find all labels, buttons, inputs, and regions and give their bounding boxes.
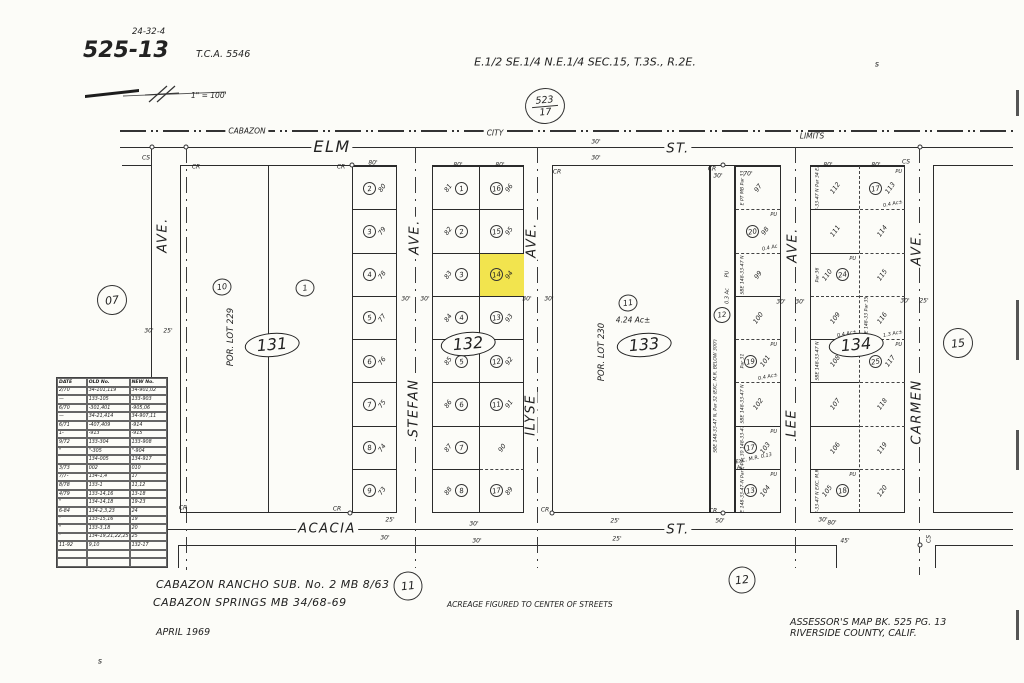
lot-cell: SBE 148-33-47 N Par 34 EXC. M.R. 112 (811, 166, 859, 209)
lot-cell: 90 (480, 426, 524, 469)
lot-cell: 81 1 (433, 166, 479, 209)
parcel-number-circle: 6 (362, 354, 377, 369)
scale-label: 1" = 100' (191, 92, 227, 100)
revision-date: 1- (57, 430, 87, 439)
parcel-number-circle: 4 (362, 267, 377, 282)
registration-mark: s (875, 60, 879, 69)
dimension-label: 30' (591, 139, 600, 146)
street-suffix-lee: AVE. (787, 225, 800, 265)
revision-old-no: 133-15,16 (87, 516, 130, 525)
original-lot-number: 76 (377, 355, 388, 366)
revision-old-no: -301,401 (87, 404, 130, 413)
pu-label: PU (770, 212, 777, 218)
parcel-note: SBE 148-33-47 N (816, 342, 821, 381)
parcel-number-circle: 25 (868, 354, 883, 369)
revision-date (57, 558, 87, 567)
lot-cell: 82 2 (433, 209, 479, 252)
revision-date: 9/72 (57, 438, 87, 447)
lot-cell: SBE Par 30 148-33-47 N PU 17 103 EXC. M.… (736, 426, 780, 469)
revision-old-no: 34-101,119 (87, 387, 130, 396)
parcel-number-circle: 20 (745, 224, 760, 239)
revision-date: — (57, 395, 87, 404)
revision-date: " (57, 516, 87, 525)
dimension-label: 30' (420, 296, 429, 303)
parcel-number-circle: 19 (743, 354, 758, 369)
south-block-stub-1 (178, 545, 179, 568)
revision-table-row: " 133-3,18 20 (57, 524, 167, 533)
revision-table-row: 7/7- 134-1,4 17 (57, 473, 167, 482)
revision-date: 7/7- (57, 473, 87, 482)
revision-table-row: 134-005 134-917 (57, 455, 167, 464)
original-lot-number: 117 (883, 354, 897, 369)
scan-edge-mark (1016, 300, 1019, 360)
revision-new-no: 133-903 (130, 395, 167, 404)
city-limits-label-city: CITY (484, 129, 507, 137)
strip-sbe-note: SBE 148-33-47 N, Par 32 (EXC. M.R. BELOW… (715, 339, 720, 453)
revision-date (57, 550, 87, 559)
original-lot-number: 98 (760, 226, 771, 237)
dimension-label: 30' (472, 538, 481, 545)
lot-cell: 15 95 (480, 209, 524, 252)
legal-description-title: E.1/2 SE.1/4 N.E.1/4 SEC.15, T.3S., R.2E… (474, 57, 696, 68)
parcel-number-circle: 8 (362, 440, 377, 455)
revision-date: — (57, 412, 87, 421)
street-suffix-acacia: ST. (664, 524, 691, 537)
revision-table-row: " 134-14,18 19-23 (57, 498, 167, 507)
revision-new-no: -915 (130, 430, 167, 439)
corner-marker-label: CR (553, 169, 561, 176)
dimension-label: 30' (522, 296, 531, 303)
original-lot-number: 86 (443, 399, 454, 410)
original-lot-number: 115 (876, 267, 890, 282)
city-limits-label-limits: LIMITS (797, 132, 827, 140)
lot-cell: 7 75 (353, 382, 397, 425)
scan-edge-mark (1016, 430, 1019, 470)
corner-marker-label: CR (541, 507, 549, 514)
lot-cell: 107 (811, 382, 859, 425)
original-lot-number: 77 (377, 312, 388, 323)
corner-marker-label: CR (337, 164, 345, 171)
dimension-label: 30' (900, 298, 909, 305)
revision-table-row: " "-305 "-904 (57, 447, 167, 456)
col-header-new-no: NEW No. (130, 378, 167, 387)
carmen-centerline (919, 147, 920, 575)
lot-cell: 83 3 (433, 253, 479, 296)
corner-marker-label: CR (709, 508, 717, 515)
original-lot-number: 105 (821, 483, 835, 498)
parcel-number-circle: 9 (362, 483, 377, 498)
dimension-label: 25' (385, 517, 394, 524)
revision-new-no: 134-917 (130, 455, 167, 464)
lot-cell: 6 76 (353, 339, 397, 382)
original-lot-number: 100 (751, 310, 765, 325)
parcel-note: SBE 148-33-47 N EXC. M.R. Par 28 (816, 469, 821, 512)
street-suffix-elm: ST. (664, 143, 691, 156)
revision-table-row: 6-84 134-2,3,23 24 (57, 507, 167, 516)
revision-table-row: " 134-19,21,22,25 25 (57, 533, 167, 542)
revision-table-row: 9/72 133-304 133-908 (57, 438, 167, 447)
adjacent-page-number: 11 (400, 579, 415, 593)
dimension-label: 80' (368, 160, 377, 167)
lot-cell: SBE 148-33-47 N 99 (736, 253, 780, 296)
revision-old-no: "-305 (87, 447, 130, 456)
acacia-street-line (150, 529, 1013, 530)
registration-mark: s (98, 657, 102, 666)
original-lot-number: 114 (876, 224, 890, 239)
revision-date (57, 455, 87, 464)
corner-marker-label: CS (902, 159, 910, 166)
revision-old-no: 34-21,414 (87, 412, 130, 421)
lot-cell: PU 17 113 0.4 Ac± (860, 166, 905, 209)
dimension-label: 30' (818, 517, 827, 524)
revision-new-no (130, 550, 167, 559)
left-block-top-stub (122, 165, 151, 166)
original-lot-number: 82 (443, 226, 454, 237)
dimension-label: 30' (713, 173, 722, 180)
parcel-number-circle: 13 (743, 483, 758, 498)
revision-new-no: 133-908 (130, 438, 167, 447)
parcel-number-circle: 8 (454, 483, 469, 498)
lot-cell: 8 74 (353, 426, 397, 469)
lot-cell: SBE 148-33-47-N Par 29 PU 13 104 (736, 469, 780, 512)
original-lot-number: 75 (377, 399, 388, 410)
revision-old-no: -913 (87, 430, 130, 439)
acreage-label: 0.4 Ac (762, 243, 779, 252)
revision-table-row: 6/70 -301,401 -905,06 (57, 404, 167, 413)
stefan-centerline (415, 147, 416, 568)
revision-table-row: — 133-105 133-903 (57, 395, 167, 404)
revision-old-no (87, 558, 130, 567)
dimension-label: 30' (469, 521, 478, 528)
parcel-number-circle: 6 (454, 397, 469, 412)
revision-table-body: 2/70 34-101,119 34-901,02 — 133-105 133-… (57, 387, 167, 567)
parcel-number-circle: 13 (489, 310, 504, 325)
parcel-number-circle: 1 (454, 181, 469, 196)
dimension-label: 70' (743, 171, 752, 178)
survey-node (918, 145, 923, 150)
revision-old-no: 133-304 (87, 438, 130, 447)
corner-marker-label: CR (179, 505, 187, 512)
city-limits-label-cabazon: CABAZON (225, 127, 268, 135)
parcel-number-circle: 4 (454, 310, 469, 325)
revision-date: " (57, 498, 87, 507)
revision-new-no: 17 (130, 473, 167, 482)
original-lot-number: 110 (821, 267, 835, 282)
dimension-label: 30' (795, 299, 804, 306)
revision-new-no: 13-18 (130, 490, 167, 499)
revision-table-row: 1- -913 -915 (57, 430, 167, 439)
lot-cell: 9 73 (353, 469, 397, 512)
revision-new-no: 20 (130, 524, 167, 533)
parcel-number-circle: 7 (454, 440, 469, 455)
revision-old-no: 133-105 (87, 395, 130, 404)
lot-cell: 14 94 (480, 253, 524, 296)
revision-old-no: -407,409 (87, 421, 130, 430)
revision-new-no: 25 (130, 533, 167, 542)
original-lot-number: 92 (504, 355, 515, 366)
lot-cell: 13 93 (480, 296, 524, 339)
original-lot-number: 96 (504, 182, 515, 193)
tax-code-area: T.C.A. 5546 (196, 50, 250, 60)
parcel-number-circle: 2 (454, 224, 469, 239)
dimension-label: 80' (871, 162, 880, 169)
lot-cell: 114 (860, 209, 905, 252)
dimension-label: 50' (715, 518, 724, 525)
elm-street-line (120, 147, 1013, 148)
lot-cell: 2 80 (353, 166, 397, 209)
lee-centerline (795, 147, 796, 568)
original-lot-number: 73 (377, 485, 388, 496)
revision-date: 6/71 (57, 421, 87, 430)
lot-cell: 17 89 (480, 469, 524, 512)
revision-table-row (57, 550, 167, 559)
corner-marker-label: CS (142, 155, 150, 162)
corner-marker-label: CR (708, 166, 716, 173)
map-date: APRIL 1969 (156, 628, 210, 638)
assessor-map-ref-1: ASSESSOR'S MAP BK. 525 PG. 13 (790, 618, 946, 628)
dimension-label: 30' (380, 535, 389, 542)
dimension-label: 80' (495, 162, 504, 169)
acreage-note: ACREAGE FIGURED TO CENTER OF STREETS (447, 601, 613, 609)
revision-old-no: 9,10 (87, 541, 130, 550)
revision-date: 6-84 (57, 507, 87, 516)
parcel-number-circle: 5 (362, 310, 377, 325)
revision-date: 8/78 (57, 481, 87, 490)
street-suffix-ilyse: AVE. (526, 220, 539, 260)
survey-node (550, 511, 555, 516)
lot-cell: PU 20 98 0.4 Ac (736, 209, 780, 252)
parcel-number-circle: 12 (489, 354, 504, 369)
original-lot-number: 80 (377, 182, 388, 193)
original-lot-number: 83 (443, 269, 454, 280)
revision-date: 6/70 (57, 404, 87, 413)
original-lot-number: 81 (443, 182, 454, 193)
corner-marker-label: CR (333, 506, 341, 513)
revision-table: DATE OLD No. NEW No. 2/70 34-101,119 34-… (56, 377, 168, 568)
parcel-number-circle: 17 (868, 181, 883, 196)
block-133-lee-column: E PT MB Par 33 97 PU 20 98 0.4 Ac (735, 165, 781, 513)
lot-cell: 4 78 (353, 253, 397, 296)
parcel-number-circle: 11 (489, 397, 504, 412)
revision-old-no: 002 (87, 464, 130, 473)
dimension-label: 80' (453, 162, 462, 169)
dimension-label: 80' (827, 520, 836, 527)
revision-old-no: 134-19,21,22,25 (87, 533, 130, 542)
map-cross-ref: 24-32-4 (132, 28, 165, 37)
lot-cell: SBE 148-33-47 N EXC. M.R. Par 28 PU 105 … (811, 469, 859, 512)
pu-label: PU (770, 429, 777, 435)
original-lot-number: 112 (828, 181, 842, 196)
revision-table-row (57, 558, 167, 567)
original-lot-number: 84 (443, 312, 454, 323)
street-label-ilyse: ILYSE (525, 392, 538, 438)
lot-cell: 118 (860, 382, 905, 425)
adjacent-page-ref-523-17: 523 17 (524, 86, 567, 125)
revision-table-row: 11-92 9,10 132-17 (57, 541, 167, 550)
revision-old-no: 134-1,4 (87, 473, 130, 482)
dimension-label: 30' (776, 299, 785, 306)
survey-node (721, 511, 726, 516)
revision-date: " (57, 533, 87, 542)
original-lot-number: 116 (876, 310, 890, 325)
revision-table-row: 3/73 002 010 (57, 464, 167, 473)
corner-marker-label: CR (192, 164, 200, 171)
lot-cell: 88 8 (433, 469, 479, 512)
lot-cell: 5 77 (353, 296, 397, 339)
lot-cell: 120 (860, 469, 905, 512)
parcel-note: SBE 148-33-47 N (741, 255, 746, 294)
parcel-number-circle: 7 (362, 397, 377, 412)
street-label-elm: ELM (311, 139, 352, 155)
street-label-lee: LEE (786, 407, 799, 439)
revision-new-no: -905,06 (130, 404, 167, 413)
street-label-carmen: CARMEN (911, 377, 924, 446)
revision-date: 11-92 (57, 541, 87, 550)
revision-table-row: " 133-15,16 19 (57, 516, 167, 525)
parcel-number-circle: 16 (489, 181, 504, 196)
dimension-label: 25' (919, 298, 928, 305)
parcel-number-circle: 24 (835, 267, 850, 282)
parcel-number-circle: 2 (362, 181, 377, 196)
original-lot-number: 102 (751, 397, 765, 412)
adjacent-page-number: 15 (950, 336, 965, 350)
revision-date: " (57, 447, 87, 456)
revision-table-row: 2/70 34-101,119 34-901,02 (57, 387, 167, 396)
original-lot-number: 95 (504, 226, 515, 237)
parcel-note: Par 36 (816, 267, 821, 282)
parcel-number-circle: 3 (362, 224, 377, 239)
revision-new-no: "-904 (130, 447, 167, 456)
original-lot-number: 87 (443, 442, 454, 453)
revision-old-no (87, 550, 130, 559)
lot-cell: Par 31 PU 19 101 0.4 Ac± (736, 339, 780, 382)
strip-acreage: 0.3 Ac (726, 288, 731, 304)
adjacent-page-number: 12 (734, 573, 749, 587)
revision-table-row: 4/79 133-14,16 13-18 (57, 490, 167, 499)
original-lot-number: 90 (496, 442, 507, 453)
adjacent-page-ref: 12 (727, 565, 757, 595)
scan-edge-mark (1016, 90, 1019, 116)
original-lot-number: 106 (828, 440, 842, 455)
survey-node (721, 163, 726, 168)
original-lot-number: 119 (876, 440, 890, 455)
pu-label: PU (770, 472, 777, 478)
dimension-label: 30' (401, 296, 410, 303)
revision-old-no: 134-2,3,23 (87, 507, 130, 516)
revision-new-no: 11,12 (130, 481, 167, 490)
assessor-map-ref-2: RIVERSIDE COUNTY, CALIF. (790, 629, 917, 639)
acreage-label: 0.4 Ac± (883, 199, 904, 209)
original-lot-number: 85 (443, 355, 454, 366)
original-lot-number: 79 (377, 226, 388, 237)
parcel-note: SBE 148-33-47 N (741, 385, 746, 424)
parcel-number-circle: 17 (743, 440, 758, 455)
south-block-stub-3 (935, 545, 936, 568)
dimension-label: 25' (610, 518, 619, 525)
lot-cell: 87 7 (433, 426, 479, 469)
original-lot-number: 94 (504, 269, 515, 280)
original-lot-number: 88 (443, 485, 454, 496)
lot-cell: 111 (811, 209, 859, 252)
block-131-lot-strip: 2 80 3 79 (352, 166, 397, 512)
original-lot-number: 113 (883, 181, 897, 196)
revision-table-row: — 34-21,414 34-907,11 (57, 412, 167, 421)
original-lot-number: 91 (504, 399, 515, 410)
parcel-number-circle: 15 (489, 224, 504, 239)
revision-old-no: 134-14,18 (87, 498, 130, 507)
pu-label: PU (895, 169, 902, 175)
original-lot-number: 120 (876, 483, 890, 498)
original-lot-number: 111 (828, 224, 842, 239)
parcel-number-circle: 17 (489, 483, 504, 498)
adjacent-page-ref: 11 (392, 570, 424, 602)
revision-new-no: 19-23 (130, 498, 167, 507)
col-header-old-no: OLD No. (87, 378, 130, 387)
pu-label: PU (849, 472, 856, 478)
street-label-stefan: STEFAN (408, 377, 421, 440)
subdivision-note-1: CABAZON RANCHO SUB. No. 2 MB 8/63 (156, 579, 389, 590)
lot-cell: 86 6 (433, 382, 479, 425)
survey-node (348, 511, 353, 516)
revision-old-no: 133-1 (87, 481, 130, 490)
original-lot-number: 104 (759, 483, 773, 498)
revision-new-no: 34-907,11 (130, 412, 167, 421)
dimension-label: 30' (544, 296, 553, 303)
revision-new-no: 24 (130, 507, 167, 516)
lot-cell: 11 91 (480, 382, 524, 425)
assessor-map-page: 24-32-4 525-13 T.C.A. 5546 E.1/2 SE.1/4 … (0, 0, 1024, 683)
dimension-label: 80' (823, 162, 832, 169)
original-lot-number: 97 (752, 182, 763, 193)
book-page-number: 525-13 (83, 40, 169, 62)
street-label-acacia: ACACIA (296, 523, 358, 536)
block-131-por-lot-label: POR. LOT 229 (227, 308, 236, 366)
lot-cell: Par 36 PU 110 24 (811, 253, 859, 296)
revision-old-no: 134-005 (87, 455, 130, 464)
block-133-acreage: 4.24 Ac± (616, 316, 651, 324)
block-133-pu-strip: SBE 148-33-47 N, Par 32 (EXC. M.R. BELOW… (710, 165, 735, 513)
revision-new-no: 19 (130, 516, 167, 525)
parcel-number-circle: 14 (489, 267, 504, 282)
acreage-label: 0.4 Ac± (758, 372, 779, 382)
lot-cell: 106 (811, 426, 859, 469)
survey-node (918, 543, 923, 548)
south-block-stub-2 (836, 545, 837, 568)
corner-marker-label: CS (926, 535, 933, 543)
pu-label: PU (849, 256, 856, 262)
revision-date: 4/79 (57, 490, 87, 499)
dimension-label: 30' (591, 155, 600, 162)
lot-cell: 3 79 (353, 209, 397, 252)
original-lot-number: 99 (752, 269, 763, 280)
survey-node (350, 163, 355, 168)
revision-new-no: 34-901,02 (130, 387, 167, 396)
original-lot-number: 93 (504, 312, 515, 323)
parcel-number-circle: 3 (454, 267, 469, 282)
revision-new-no: 132-17 (130, 541, 167, 550)
revision-date: " (57, 524, 87, 533)
lot-cell: 119 (860, 426, 905, 469)
revision-new-no: 010 (130, 464, 167, 473)
lot-cell: SBE 148-33-47 N 102 (736, 382, 780, 425)
block-133-por-lot-label: POR. LOT 230 (598, 323, 607, 381)
adjacent-page-page: 17 (532, 104, 559, 118)
adjacent-page-number: 07 (104, 293, 119, 307)
street-suffix-stefan: AVE. (409, 217, 422, 257)
revision-date: 3/73 (57, 464, 87, 473)
parcel-number-circle: 18 (835, 483, 850, 498)
acreage-label: 1.3 Ac± (883, 329, 904, 339)
